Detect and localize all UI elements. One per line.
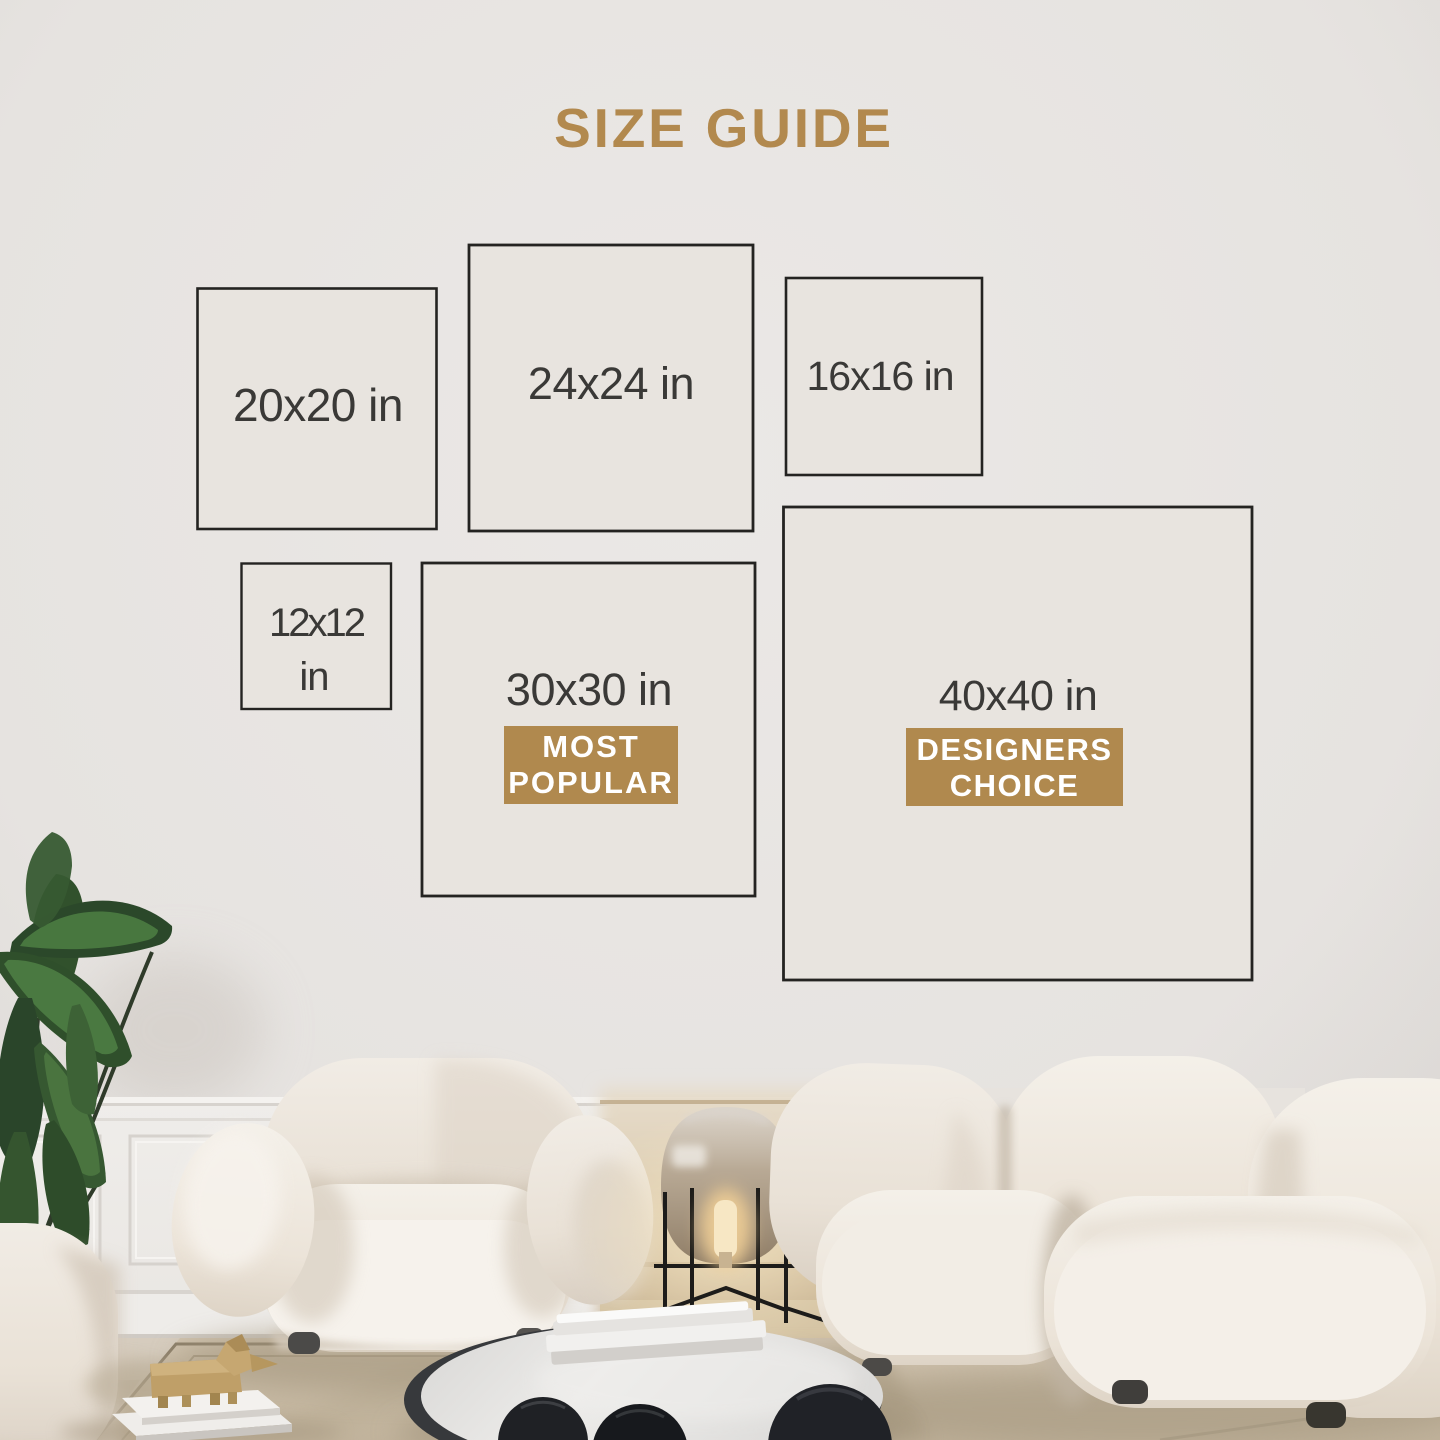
svg-text:MOST: MOST [542,729,640,764]
svg-text:40x40 in: 40x40 in [939,672,1098,720]
svg-text:DESIGNERS: DESIGNERS [916,732,1112,767]
svg-text:30x30 in: 30x30 in [506,664,672,715]
svg-text:20x20 in: 20x20 in [233,379,403,431]
svg-text:in: in [299,655,328,699]
svg-text:16x16 in: 16x16 in [806,353,953,399]
svg-text:SIZE GUIDE: SIZE GUIDE [554,97,894,159]
svg-text:POPULAR: POPULAR [508,765,674,800]
svg-text:24x24 in: 24x24 in [528,358,694,409]
svg-text:CHOICE: CHOICE [950,768,1080,803]
svg-text:12x12: 12x12 [269,601,365,645]
